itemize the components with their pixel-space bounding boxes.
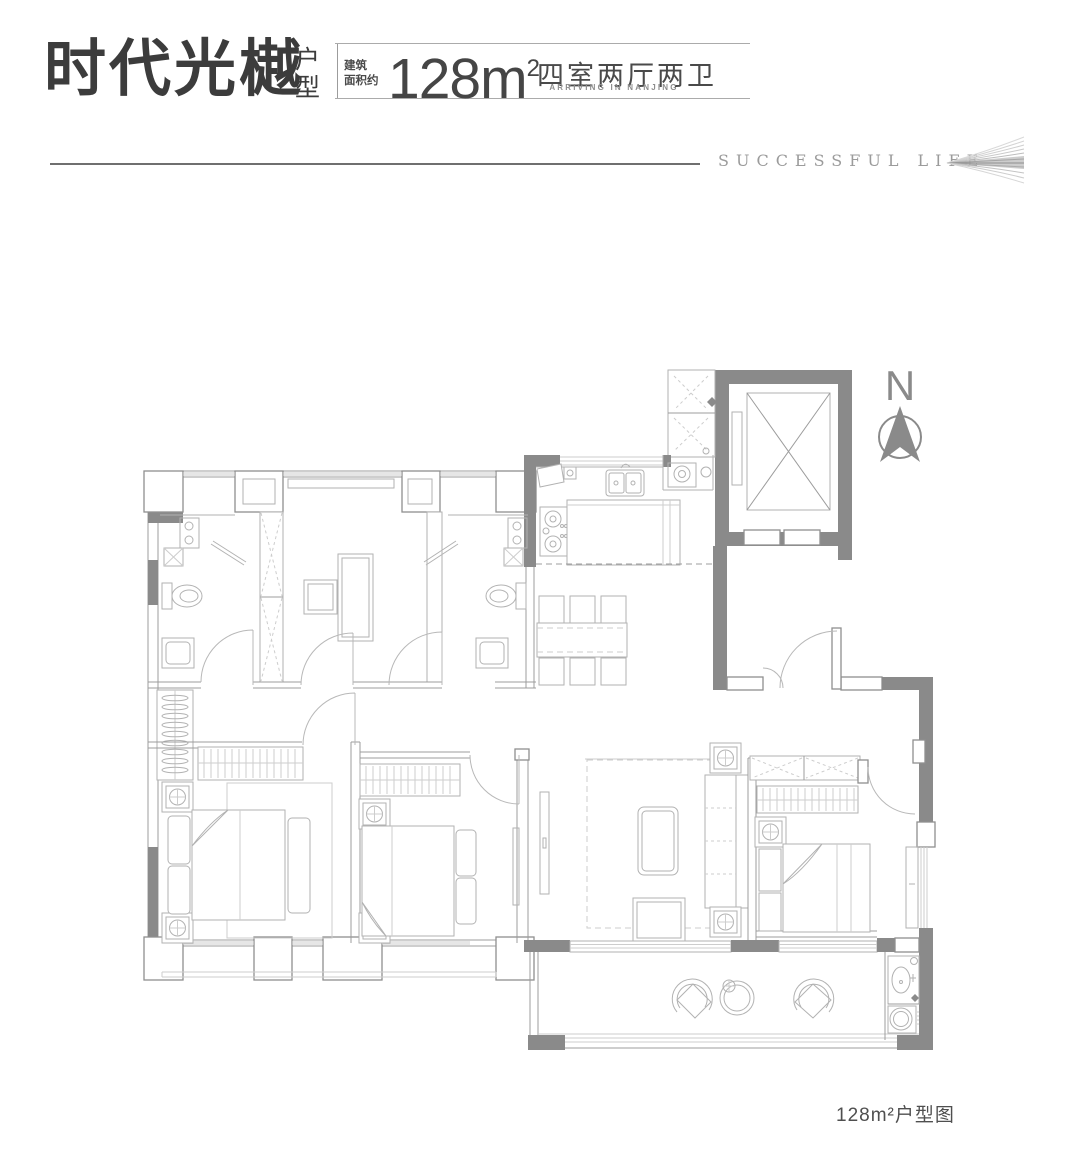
- subtitle-en: ARRIVING IN NANJING: [538, 83, 690, 92]
- entry: [713, 546, 933, 690]
- bedroom-4: [748, 740, 925, 943]
- area-label-line2: 面积约: [344, 74, 386, 89]
- bathroom-1: [160, 515, 246, 668]
- laundry-corner: [885, 952, 919, 1040]
- elevator-core: [715, 370, 852, 560]
- floor-plan-drawing: [140, 360, 960, 1070]
- page-title: 时代光樾: [44, 34, 304, 104]
- area-label-line1: 建筑: [344, 59, 380, 74]
- duct-shaft: [668, 370, 717, 457]
- horizontal-rule: [50, 163, 700, 165]
- plan-caption: 128m²户型图: [836, 1100, 955, 1127]
- bedroom-2: [359, 764, 519, 943]
- title-suffix: 户型: [295, 46, 323, 102]
- dining-set: [537, 596, 627, 685]
- header-divider: [337, 43, 338, 99]
- fan-lines-decoration: [938, 133, 1028, 195]
- area-number: 128m: [388, 47, 527, 111]
- area-label: 建筑 面积约: [344, 59, 386, 89]
- floor-plan-poster: 时代光樾 户型 建筑 面积约 128m2 四室两厅两卫 ARRIVING IN …: [0, 0, 1080, 1168]
- study: [260, 512, 442, 682]
- balcony: [524, 938, 933, 1050]
- area-value: 128m2: [388, 40, 540, 108]
- living-room: [540, 743, 748, 942]
